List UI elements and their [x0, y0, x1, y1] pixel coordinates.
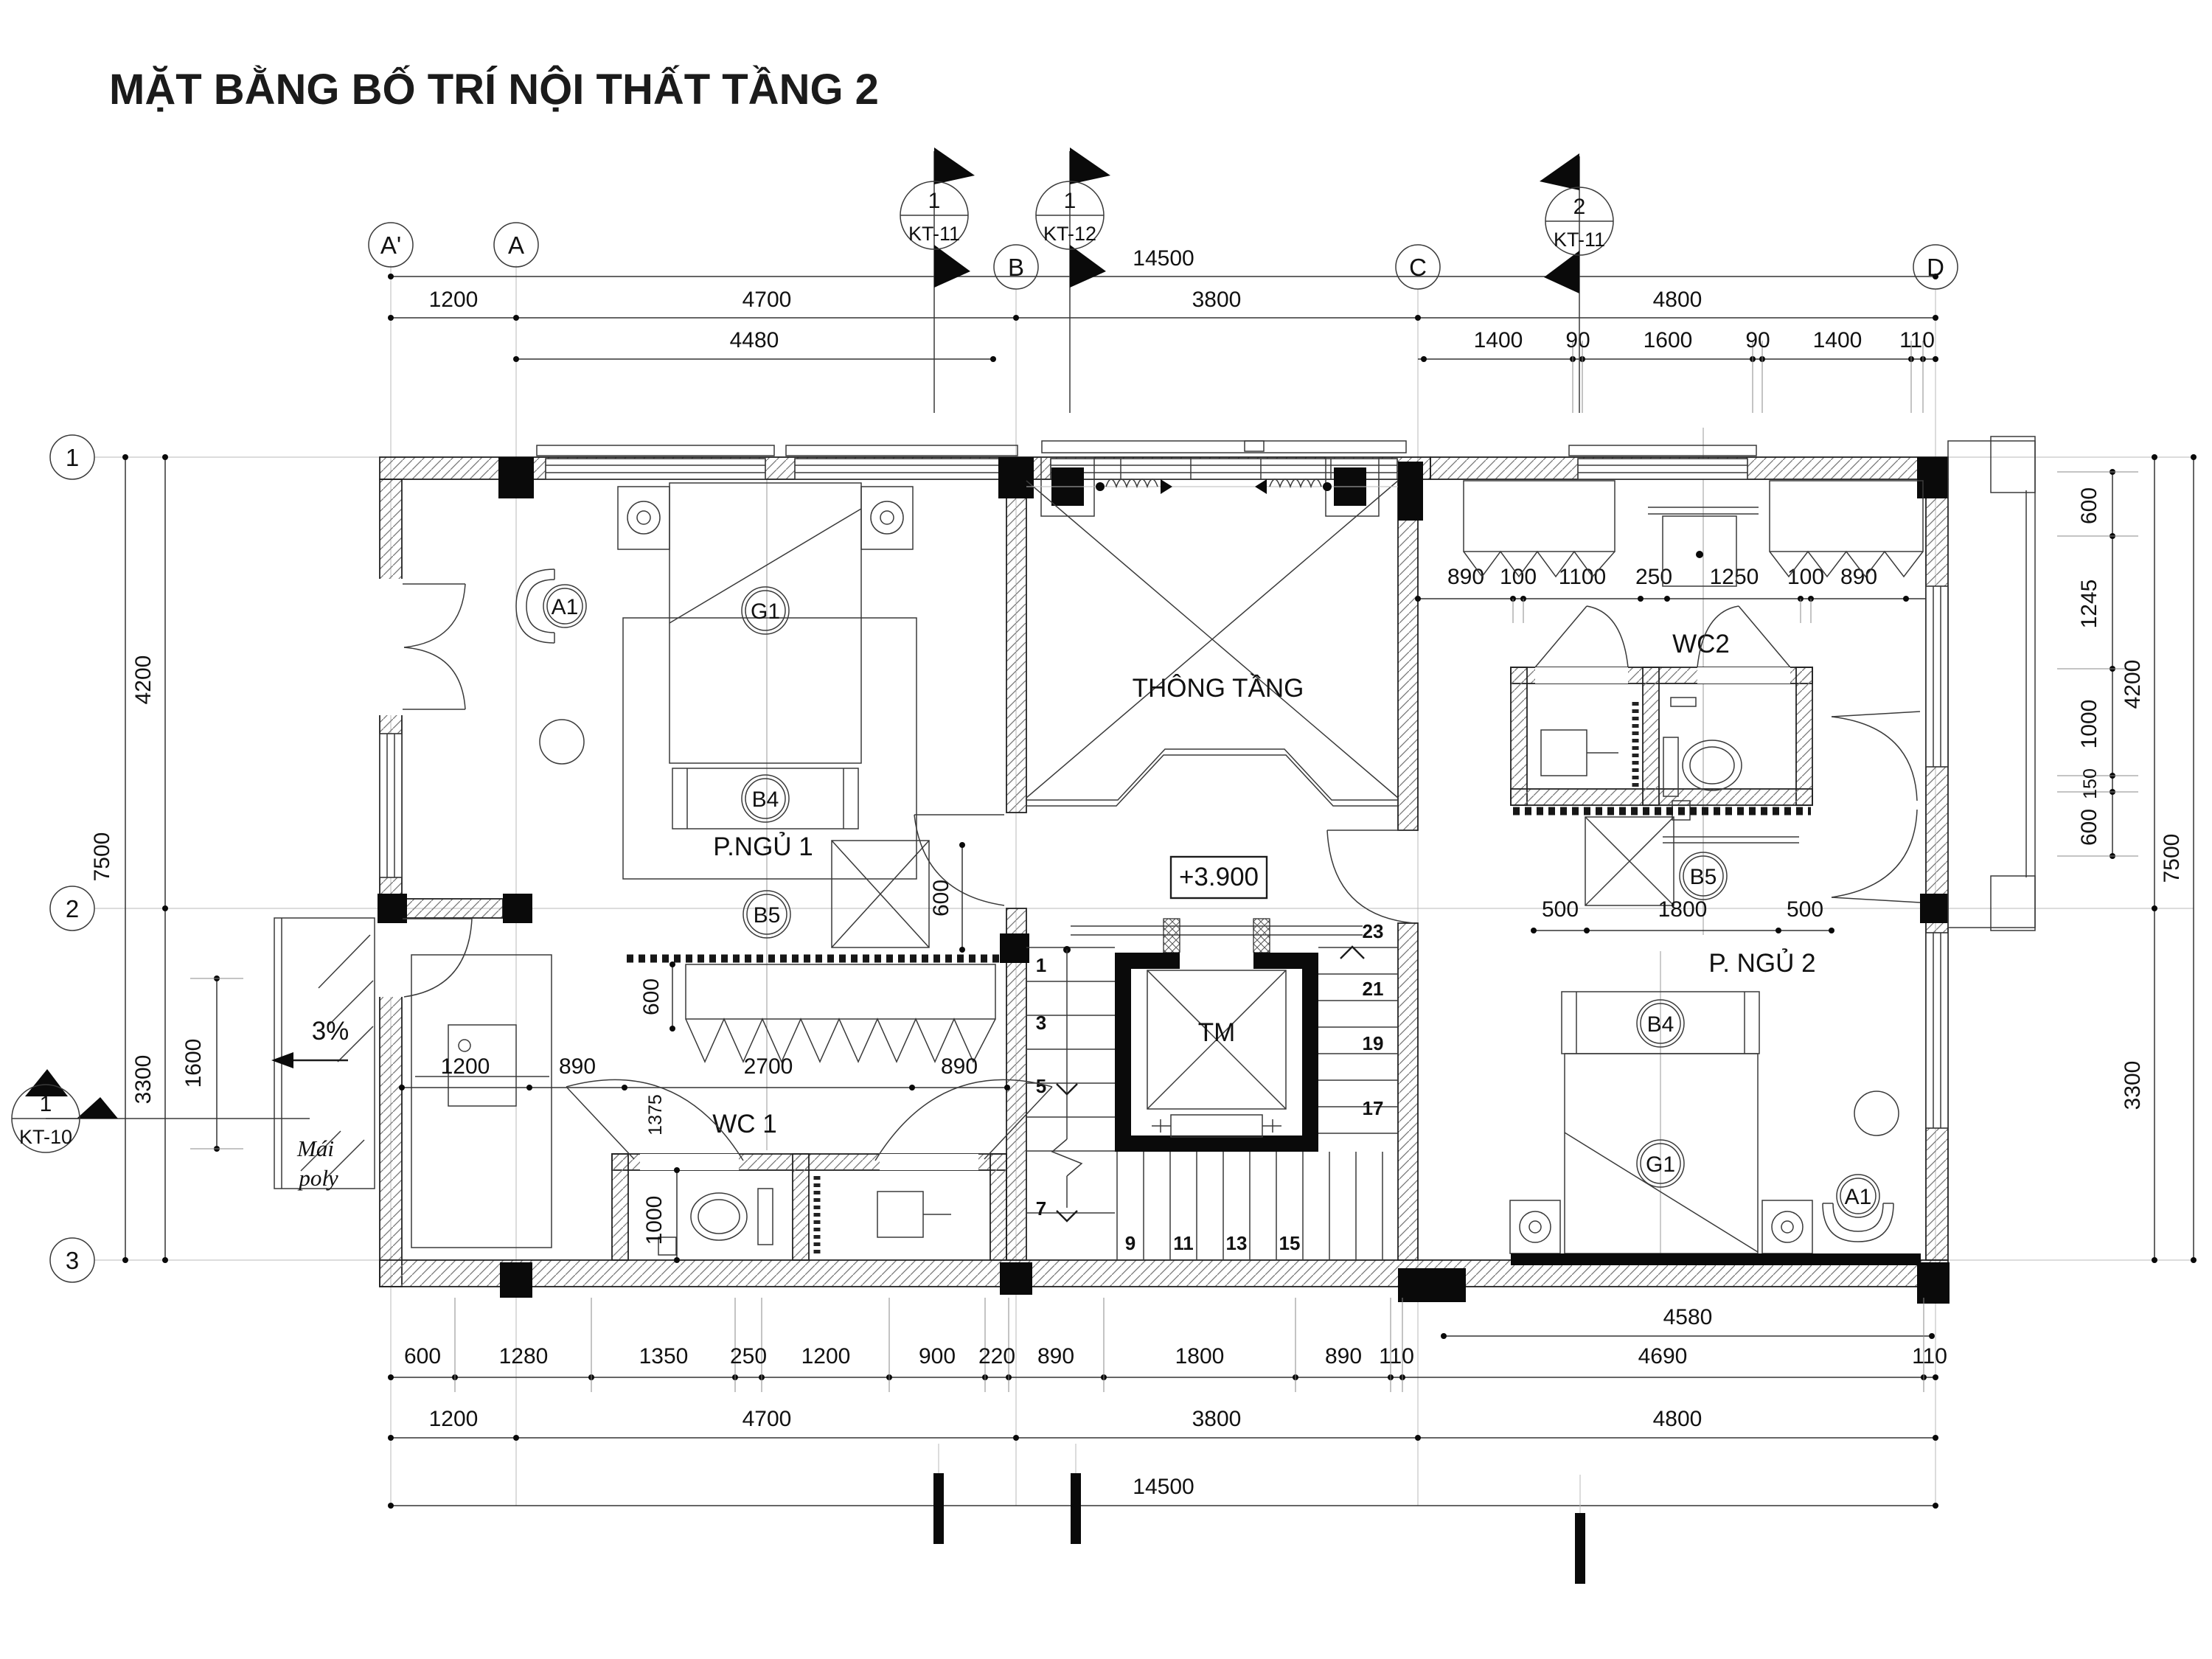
dim-label: 4480	[730, 328, 779, 352]
dim-label: 1400	[1813, 328, 1863, 352]
dim-label: 4690	[1638, 1344, 1688, 1368]
void-area: THÔNG TẦNG +3.900	[1026, 479, 1416, 923]
stair-number: 9	[1125, 1232, 1135, 1254]
vent-symbol	[1245, 441, 1264, 451]
door-arc	[404, 584, 465, 647]
dim-label: 900	[919, 1344, 956, 1368]
room-label-wc1: WC 1	[712, 1110, 777, 1138]
dimensions-right: 600 1245 1000 150 600 4200 3300 7500	[2057, 454, 2197, 1263]
grid-bubble-3: 3	[66, 1247, 79, 1274]
dim-label: 4200	[2121, 660, 2145, 709]
dim-label: 500	[1542, 897, 1579, 922]
dim-label: 600	[2077, 809, 2101, 846]
dim-label: 890	[941, 1054, 978, 1079]
dim-label: 100	[1500, 565, 1537, 589]
door-arc	[1327, 830, 1414, 923]
grid-bubble-A: A	[508, 232, 524, 259]
wc1: 1200 890 2700 890 1375 WC 1 1000	[399, 1054, 1052, 1263]
closet	[411, 955, 552, 1248]
wall-C-lower	[1398, 923, 1418, 1260]
dim-label: 890	[1325, 1344, 1362, 1368]
window-sill	[1042, 441, 1406, 453]
sink	[877, 1192, 923, 1237]
dimensions-top: 14500 1200 4700 3800 4800 4480 1400 90 1…	[388, 246, 1938, 413]
spring-symbol	[1106, 479, 1158, 487]
stair-number: 1	[1036, 954, 1046, 976]
slope-label: 3%	[312, 1017, 349, 1046]
stair-number: 3	[1036, 1012, 1046, 1034]
nightstand	[618, 487, 669, 549]
dim-label: 1800	[1658, 897, 1708, 922]
column	[1000, 933, 1029, 963]
dim-label: 4700	[742, 1407, 792, 1431]
nightstand	[861, 487, 913, 549]
column	[1398, 1268, 1466, 1302]
window	[795, 459, 1009, 479]
floor-plan-drawing: THÔNG TẦNG +3.900 TM 1 3 5 7 9 11 13 1	[0, 0, 2212, 1659]
door-arc	[404, 919, 472, 997]
roof-label-2: poly	[297, 1165, 338, 1191]
dim-label: 7500	[2160, 834, 2184, 883]
dim-label: 600	[2077, 487, 2101, 524]
door-arc	[1587, 606, 1628, 667]
tag-bench2: B4	[1647, 1012, 1674, 1037]
tag-armchair2: A1	[1845, 1185, 1872, 1209]
door-arc	[404, 647, 465, 709]
section-cut-bar	[933, 1473, 944, 1544]
wall-B-upper	[1006, 479, 1026, 813]
dim-label: 7500	[90, 832, 114, 882]
stair-number: 13	[1226, 1232, 1248, 1254]
stair-number: 19	[1363, 1032, 1384, 1054]
counterweight	[1171, 1115, 1262, 1137]
dim-label: 1800	[1175, 1344, 1225, 1368]
side-table	[1854, 1091, 1899, 1135]
dim-label: 1200	[441, 1054, 490, 1079]
dim-label: 1245	[2077, 580, 2101, 629]
dimensions-bottom: 4580 600 1280 1350 250 1200 900 220 890 …	[388, 1298, 1947, 1509]
dim-label: 250	[730, 1344, 767, 1368]
grid-bubble-2: 2	[66, 895, 79, 922]
stair-number: 21	[1363, 978, 1384, 1000]
wardrobe	[1464, 481, 1615, 552]
side-table	[540, 720, 584, 764]
dim-label: 890	[1447, 565, 1484, 589]
dimensions-left: 7500 4200 3300	[90, 454, 168, 1263]
marker-kt10-sheet: KT-10	[19, 1126, 72, 1148]
column	[1398, 462, 1423, 521]
window-west	[380, 734, 402, 877]
section-cut-bar	[1071, 1473, 1081, 1544]
level-label: +3.900	[1179, 863, 1259, 891]
dim-label: 3300	[2121, 1061, 2145, 1110]
tag-bench1: B4	[752, 787, 779, 812]
marker-kt12-num: 1	[1064, 189, 1077, 213]
door-arc	[1832, 810, 1917, 897]
tag-vanity1: B5	[754, 903, 781, 928]
wall-grid2-stub	[402, 899, 503, 918]
dim-label: 90	[1565, 328, 1590, 352]
dim-label: 500	[1787, 897, 1823, 922]
stair-number: 15	[1279, 1232, 1301, 1254]
tag-bed2: G1	[1646, 1152, 1675, 1177]
grid-bubble-C: C	[1409, 254, 1427, 281]
wc2: 890 100 1100 250 1250 100 890 WC2 B5 500…	[1415, 565, 1926, 933]
stair-number: 23	[1363, 920, 1384, 942]
window	[546, 459, 765, 479]
tag-bed1: G1	[751, 599, 780, 624]
dim-label: 14500	[1133, 1475, 1194, 1499]
dim-label: 600	[639, 978, 664, 1015]
section-cut-bar	[1575, 1513, 1585, 1584]
dim-label: 220	[978, 1344, 1015, 1368]
dim-label: 1600	[181, 1039, 206, 1088]
dim-label: 3800	[1192, 1407, 1242, 1431]
dim-label: 1200	[429, 288, 479, 312]
dim-label: 110	[1912, 1344, 1947, 1368]
column	[500, 1262, 532, 1298]
dim-label: 1350	[639, 1344, 689, 1368]
dim-label: 1100	[1559, 565, 1607, 589]
window-sill	[1569, 445, 1756, 456]
window-east	[1926, 933, 1948, 1128]
grid-lines	[94, 265, 2194, 1506]
column	[503, 894, 532, 923]
window-east	[1926, 586, 1948, 767]
room-label-void: THÔNG TẦNG	[1133, 673, 1304, 703]
bedroom1: G1 B4 A1 P.NGỦ 1	[403, 483, 1004, 997]
dim-label: 1400	[1474, 328, 1523, 352]
grid-bubble-B: B	[1008, 254, 1024, 281]
wardrobe	[1770, 481, 1923, 552]
column	[1917, 457, 1948, 498]
dim-label: 1375	[645, 1094, 666, 1135]
marker-kt12-sheet: KT-12	[1043, 223, 1096, 245]
grid-bubble-A': A'	[380, 232, 401, 259]
floor-edge	[1511, 1253, 1921, 1265]
staircase: TM 1 3 5 7 9 11 13 15 23 21 19 17	[1026, 919, 1398, 1260]
dim-label: 100	[1787, 565, 1824, 589]
grid-bubble-1: 1	[66, 444, 79, 471]
toilet	[1683, 740, 1742, 790]
toilet-tank	[1663, 737, 1678, 796]
window	[1578, 459, 1747, 479]
dim-label: 600	[404, 1344, 441, 1368]
dim-label: 890	[1037, 1344, 1074, 1368]
dim-label: 1200	[429, 1407, 479, 1431]
dim-label: 1200	[801, 1344, 851, 1368]
dim-label: 4580	[1663, 1305, 1713, 1329]
stair-number: 11	[1173, 1232, 1194, 1254]
stair-number: 7	[1036, 1197, 1046, 1220]
dim-label: 1000	[2077, 700, 2101, 749]
dim-label: 150	[2080, 768, 2101, 799]
column	[1920, 894, 1948, 923]
windows	[380, 441, 1948, 1128]
wall-C-upper	[1398, 479, 1418, 830]
marker-kt11a-sheet: KT-11	[908, 223, 960, 245]
dim-label: 110	[1379, 1344, 1414, 1368]
marker-kt11b-num: 2	[1573, 195, 1586, 219]
dim-label: 14500	[1133, 246, 1194, 271]
dim-label: 2700	[744, 1054, 793, 1079]
dim-label: 1280	[499, 1344, 549, 1368]
toilet-tank	[758, 1189, 773, 1245]
dim-label: 1250	[1710, 565, 1759, 589]
column	[998, 457, 1034, 498]
dim-label: 3800	[1192, 288, 1242, 312]
grid-bubbles: A' A B C D 1 2 3	[50, 223, 1958, 1282]
door-arc	[914, 815, 1004, 905]
wardrobe	[686, 964, 995, 1019]
dim-label: 4800	[1653, 288, 1703, 312]
elevator-label: TM	[1198, 1018, 1236, 1047]
dim-label: 890	[559, 1054, 596, 1079]
room-label-bedroom2: P. NGỦ 2	[1708, 948, 1815, 978]
marker-kt10-num: 1	[40, 1092, 52, 1116]
dim-label: 4700	[742, 288, 792, 312]
door-arc	[1832, 717, 1917, 801]
balcony-east	[1948, 437, 2035, 931]
grid-bubble-D: D	[1927, 254, 1944, 281]
column	[1000, 1262, 1032, 1295]
column	[1917, 1262, 1950, 1304]
dim-label: 250	[1635, 565, 1672, 589]
roof-poly: 3% Mái poly 1600	[181, 918, 375, 1191]
dim-label: 1600	[1644, 328, 1693, 352]
nightstand	[1510, 1200, 1560, 1253]
window-sill	[786, 445, 1018, 456]
room-label-wc2: WC2	[1672, 630, 1730, 658]
dim-label: 3300	[131, 1055, 156, 1105]
dim-label: 1000	[642, 1196, 667, 1245]
dim-label: 90	[1745, 328, 1770, 352]
dim-label: 600	[929, 880, 953, 917]
window-sill	[537, 445, 774, 456]
column	[498, 457, 534, 498]
shelf	[1671, 698, 1696, 706]
marker-kt11a-num: 1	[928, 189, 941, 213]
dim-label: 110	[1899, 328, 1935, 352]
sink	[1541, 730, 1587, 776]
spring-symbol	[1270, 479, 1321, 487]
stair-number: 17	[1363, 1097, 1384, 1119]
room-label-bedroom1: P.NGỦ 1	[713, 832, 813, 861]
marker-kt11b-sheet: KT-11	[1554, 229, 1605, 251]
tag-armchair1: A1	[552, 595, 579, 619]
nightstand	[1762, 1200, 1812, 1253]
dim-label: 4800	[1653, 1407, 1703, 1431]
roof-label-1: Mái	[296, 1135, 334, 1161]
tag-vanity2: B5	[1690, 865, 1717, 889]
dim-label: 4200	[131, 655, 156, 705]
